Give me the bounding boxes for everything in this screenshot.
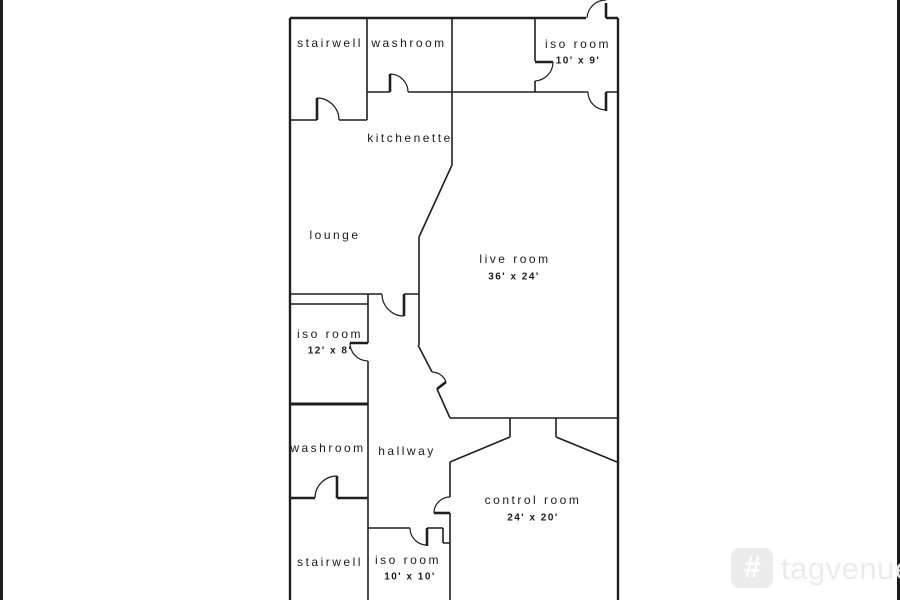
room-labels: stairwellwashroomiso room10' x 9'kitchen… [0, 0, 900, 600]
room-label-hallway: hallway [378, 444, 436, 458]
room-label-control-room: control room [485, 493, 582, 507]
room-label-kitchenette: kitchenette [367, 131, 453, 145]
room-label-iso-room-low: iso room [375, 553, 441, 567]
room-dim-iso-room-mid: 12' x 8' [308, 346, 353, 357]
room-label-washroom-low: washroom [290, 441, 365, 455]
room-label-iso-room-top: iso room [545, 37, 611, 51]
room-dim-iso-room-top: 10' x 9' [556, 56, 601, 67]
room-label-stairwell-top: stairwell [297, 36, 363, 50]
room-dim-iso-room-low: 10' x 10' [384, 572, 436, 583]
tagvenue-logo-glyph: # [744, 551, 761, 585]
room-label-washroom-top: washroom [371, 36, 446, 50]
watermark-brand: tagvenue [781, 553, 900, 584]
room-label-live-room: live room [479, 252, 550, 266]
room-label-stairwell-low: stairwell [297, 555, 363, 569]
tagvenue-logo-icon: # [731, 548, 773, 588]
room-label-iso-room-mid: iso room [297, 327, 363, 341]
room-dim-control-room: 24' x 20' [507, 513, 559, 524]
floorplan-page: stairwellwashroomiso room10' x 9'kitchen… [0, 0, 900, 600]
watermark: # tagvenue [731, 548, 900, 588]
room-label-lounge: lounge [309, 228, 360, 242]
room-dim-live-room: 36' x 24' [488, 272, 540, 283]
